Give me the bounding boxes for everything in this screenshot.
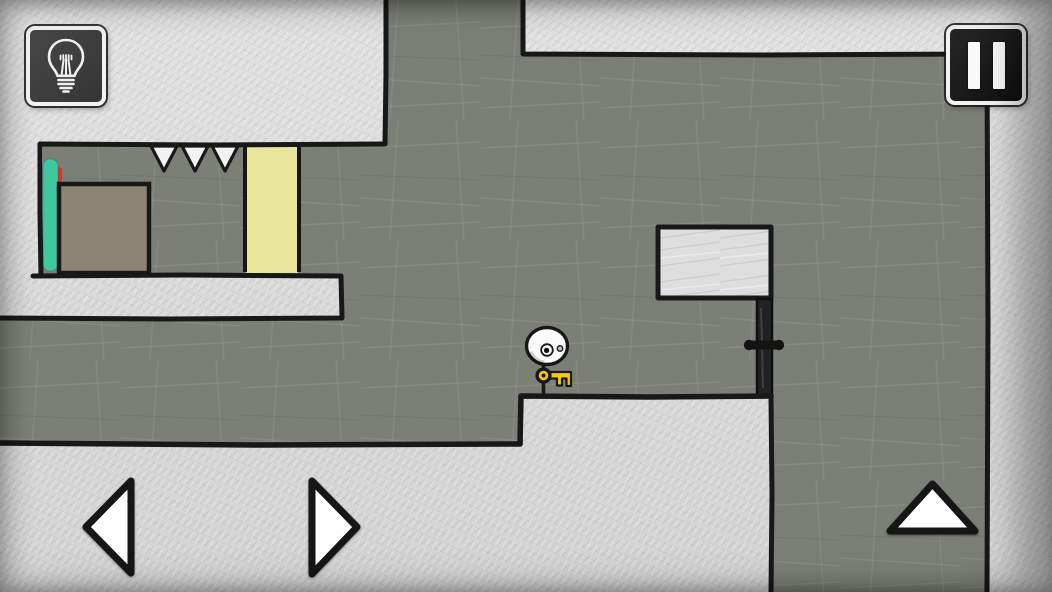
level-canvas: move left move right jump [0, 0, 1052, 592]
teal-pad [43, 159, 58, 271]
player-eye-small [557, 346, 562, 351]
game-screen: move left move right jump [0, 0, 1052, 592]
playfield-gray-areas [0, 0, 988, 592]
yellow-door [246, 146, 298, 273]
lightbulb-icon [43, 37, 89, 95]
pause-icon [968, 42, 1005, 89]
hint-button[interactable] [26, 26, 106, 106]
triangle-right-icon[interactable]: move right [312, 481, 357, 574]
crate [59, 184, 149, 273]
spikes [151, 146, 238, 171]
pause-button[interactable] [946, 25, 1026, 105]
floating-block [658, 227, 771, 298]
triangle-left-icon[interactable]: move left [86, 481, 131, 573]
